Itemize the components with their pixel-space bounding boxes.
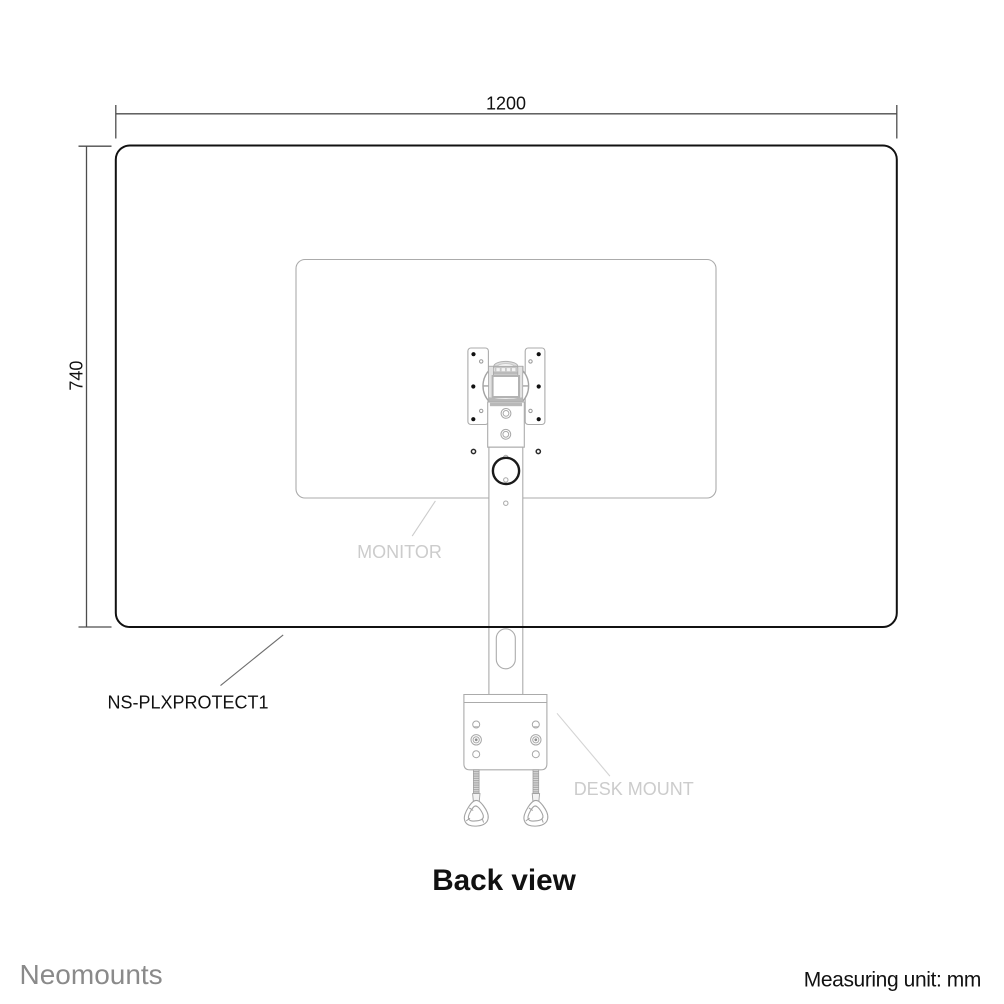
svg-text:DESK MOUNT: DESK MOUNT	[574, 779, 694, 799]
svg-text:Measuring unit: mm: Measuring unit: mm	[804, 968, 981, 991]
svg-text:NS-PLXPROTECT1: NS-PLXPROTECT1	[108, 693, 269, 713]
svg-text:MONITOR: MONITOR	[357, 542, 442, 562]
svg-text:Back view: Back view	[432, 864, 576, 897]
svg-text:740: 740	[67, 361, 87, 391]
svg-text:1200: 1200	[486, 94, 526, 114]
svg-text:Neomounts: Neomounts	[20, 959, 163, 990]
